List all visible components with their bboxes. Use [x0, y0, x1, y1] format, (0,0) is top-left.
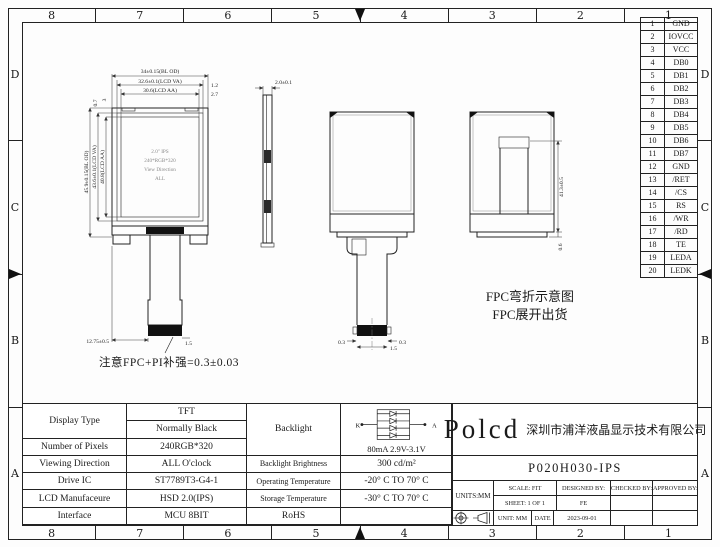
spec-cell-empty [341, 508, 453, 525]
backlight-rating: 80mA 2.9V-3.1V [367, 444, 425, 454]
screen-label: 240*RGB*320 [144, 158, 176, 164]
title-block-left-col: UNITS:MM [453, 481, 494, 525]
spec-value-pixels: 240RGB*320 [127, 439, 247, 456]
title-block-row: SHEET: 1 OF 1 FE [494, 496, 698, 511]
title-block-grid: UNITS:MM SCALE: FIT DESIGN [453, 481, 697, 525]
scale-label: SCALE: FIT [494, 481, 557, 495]
approved-by-value [653, 496, 698, 510]
spec-value-viewing: ALL O'clock [127, 456, 247, 473]
screen-label: 2.0" IPS [151, 149, 169, 155]
dimension-label: 1.5 [390, 346, 397, 352]
spec-label-pixels: Number of Pixels [23, 439, 127, 456]
dimension-label: 45.9±0.15(BL OD) [83, 150, 90, 193]
date-value: 2023-09-01 [554, 511, 611, 525]
cathode-label: K [355, 422, 360, 429]
model-number: P020H030-IPS [453, 456, 697, 481]
designed-by-label: DESIGNED BY: [557, 481, 611, 495]
dimension-label: 41.3±0.5 [559, 177, 565, 197]
company-name: 深圳市浦洋液晶显示技术有限公司 [526, 421, 706, 438]
dimension-label: 43.6±0.1(LCD VA) [91, 145, 98, 189]
spec-value-operating-temp: -20° C TO 70° C [341, 473, 453, 490]
spec-value-display-type-2: Normally Black [127, 421, 247, 438]
dimension-label: 34±0.15(BL OD) [141, 68, 180, 75]
unit-label: UNIT: MM [494, 511, 532, 525]
fpc-note-line2: FPC展开出货 [455, 306, 605, 324]
back-view: 0.3 0.3 1.5 [330, 112, 414, 352]
empty-cell [653, 511, 698, 525]
checked-by-value [611, 496, 653, 510]
dimension-label: 1.2 [211, 83, 218, 89]
side-view: 2.0±0.1 [255, 80, 292, 247]
dimension-label: 2.7 [211, 92, 218, 98]
dimension-label: 40.8(LCD AA) [99, 150, 106, 184]
spec-label-brightness: Backlight Brightness [247, 456, 341, 473]
spec-value-brightness: 300 cd/m² [341, 456, 453, 473]
dimension-label: 0.3 [399, 340, 406, 346]
checked-by-label: CHECKED BY: [611, 481, 653, 495]
dimension-label: 0.6 [558, 243, 564, 250]
front-view: 2.0" IPS 240*RGB*320 View Direction ALL … [83, 68, 218, 353]
drawing-sheet: 8 7 6 5 4 3 2 1 8 7 6 5 4 3 2 1 D C B A … [0, 0, 720, 547]
spec-value-drive-ic: ST7789T3-G4-1 [127, 473, 247, 490]
third-angle-projection-icon [453, 511, 493, 525]
title-block-row: SCALE: FIT DESIGNED BY: CHECKED BY: APPR… [494, 481, 698, 496]
units-label: UNITS:MM [453, 481, 493, 511]
caution-note: 注意FPC+PI补强=0.3±0.03 [99, 354, 239, 370]
spec-value-storage-temp: -30° C TO 70° C [341, 490, 453, 507]
screen-label: View Direction [144, 167, 176, 173]
title-block-right-grid: SCALE: FIT DESIGNED BY: CHECKED BY: APPR… [494, 481, 698, 525]
designer-initials: FE [557, 496, 611, 510]
spec-table: Display Type TFT Backlight [22, 403, 452, 526]
spec-value-manufacture: HSD 2.0(IPS) [127, 490, 247, 507]
anode-label: A [432, 422, 437, 429]
led-symbols [389, 411, 395, 438]
dimension-label: 3 [102, 98, 108, 101]
sheet-label: SHEET: 1 OF 1 [494, 496, 557, 510]
projection-symbol-cell [453, 511, 493, 525]
fpc-note-line1: FPC弯折示意图 [455, 288, 605, 306]
fpc-note: FPC弯折示意图 FPC展开出货 [455, 288, 605, 324]
spec-label-rohs: RoHS [247, 508, 341, 525]
spec-value-interface: MCU 8BIT [127, 508, 247, 525]
dimension-label: 1.5 [185, 341, 192, 347]
spec-label-storage-temp: Storage Temperature [247, 490, 341, 507]
spec-label-drive-ic: Drive IC [23, 473, 127, 490]
dimension-label: 0.7 [93, 99, 99, 106]
fpc-connector [148, 325, 182, 336]
spec-header-backlight: Backlight [247, 404, 341, 456]
dimension-label: 12.75±0.5 [86, 339, 109, 345]
backlight-circuit-cell: K A 80mA 2.9V-3.1V [341, 404, 453, 456]
date-label: DATE [532, 511, 554, 525]
title-block-row: UNIT: MM DATE 2023-09-01 [494, 511, 698, 525]
dimension-label: 32.6±0.1(LCD VA) [138, 78, 182, 85]
spec-label-display-type: Display Type [23, 404, 127, 439]
backlight-circuit-diagram: K A [347, 407, 447, 443]
title-block: Polcd 深圳市浦洋液晶显示技术有限公司 P020H030-IPS UNITS… [452, 403, 698, 526]
dimension-label: 0.3 [338, 340, 345, 346]
spec-label-manufacture: LCD Manufaceure [23, 490, 127, 507]
approved-by-label: APPROVED BY: [653, 481, 698, 495]
screen-label: ALL [155, 176, 165, 182]
dimension-label: 30.6(LCD AA) [143, 87, 177, 94]
company-logo: Polcd [444, 414, 521, 445]
title-block-logo-row: Polcd 深圳市浦洋液晶显示技术有限公司 [453, 404, 697, 456]
empty-cell [611, 511, 653, 525]
spec-label-operating-temp: Operating Temperature [247, 473, 341, 490]
folded-fpc-view: 41.3±0.5 0.6 [470, 112, 565, 251]
spec-value-display-type-1: TFT [127, 404, 247, 421]
dimension-label: 2.0±0.1 [275, 80, 292, 86]
fpc-connector [499, 137, 529, 148]
spec-label-interface: Interface [23, 508, 127, 525]
spec-label-viewing: Viewing Direction [23, 456, 127, 473]
